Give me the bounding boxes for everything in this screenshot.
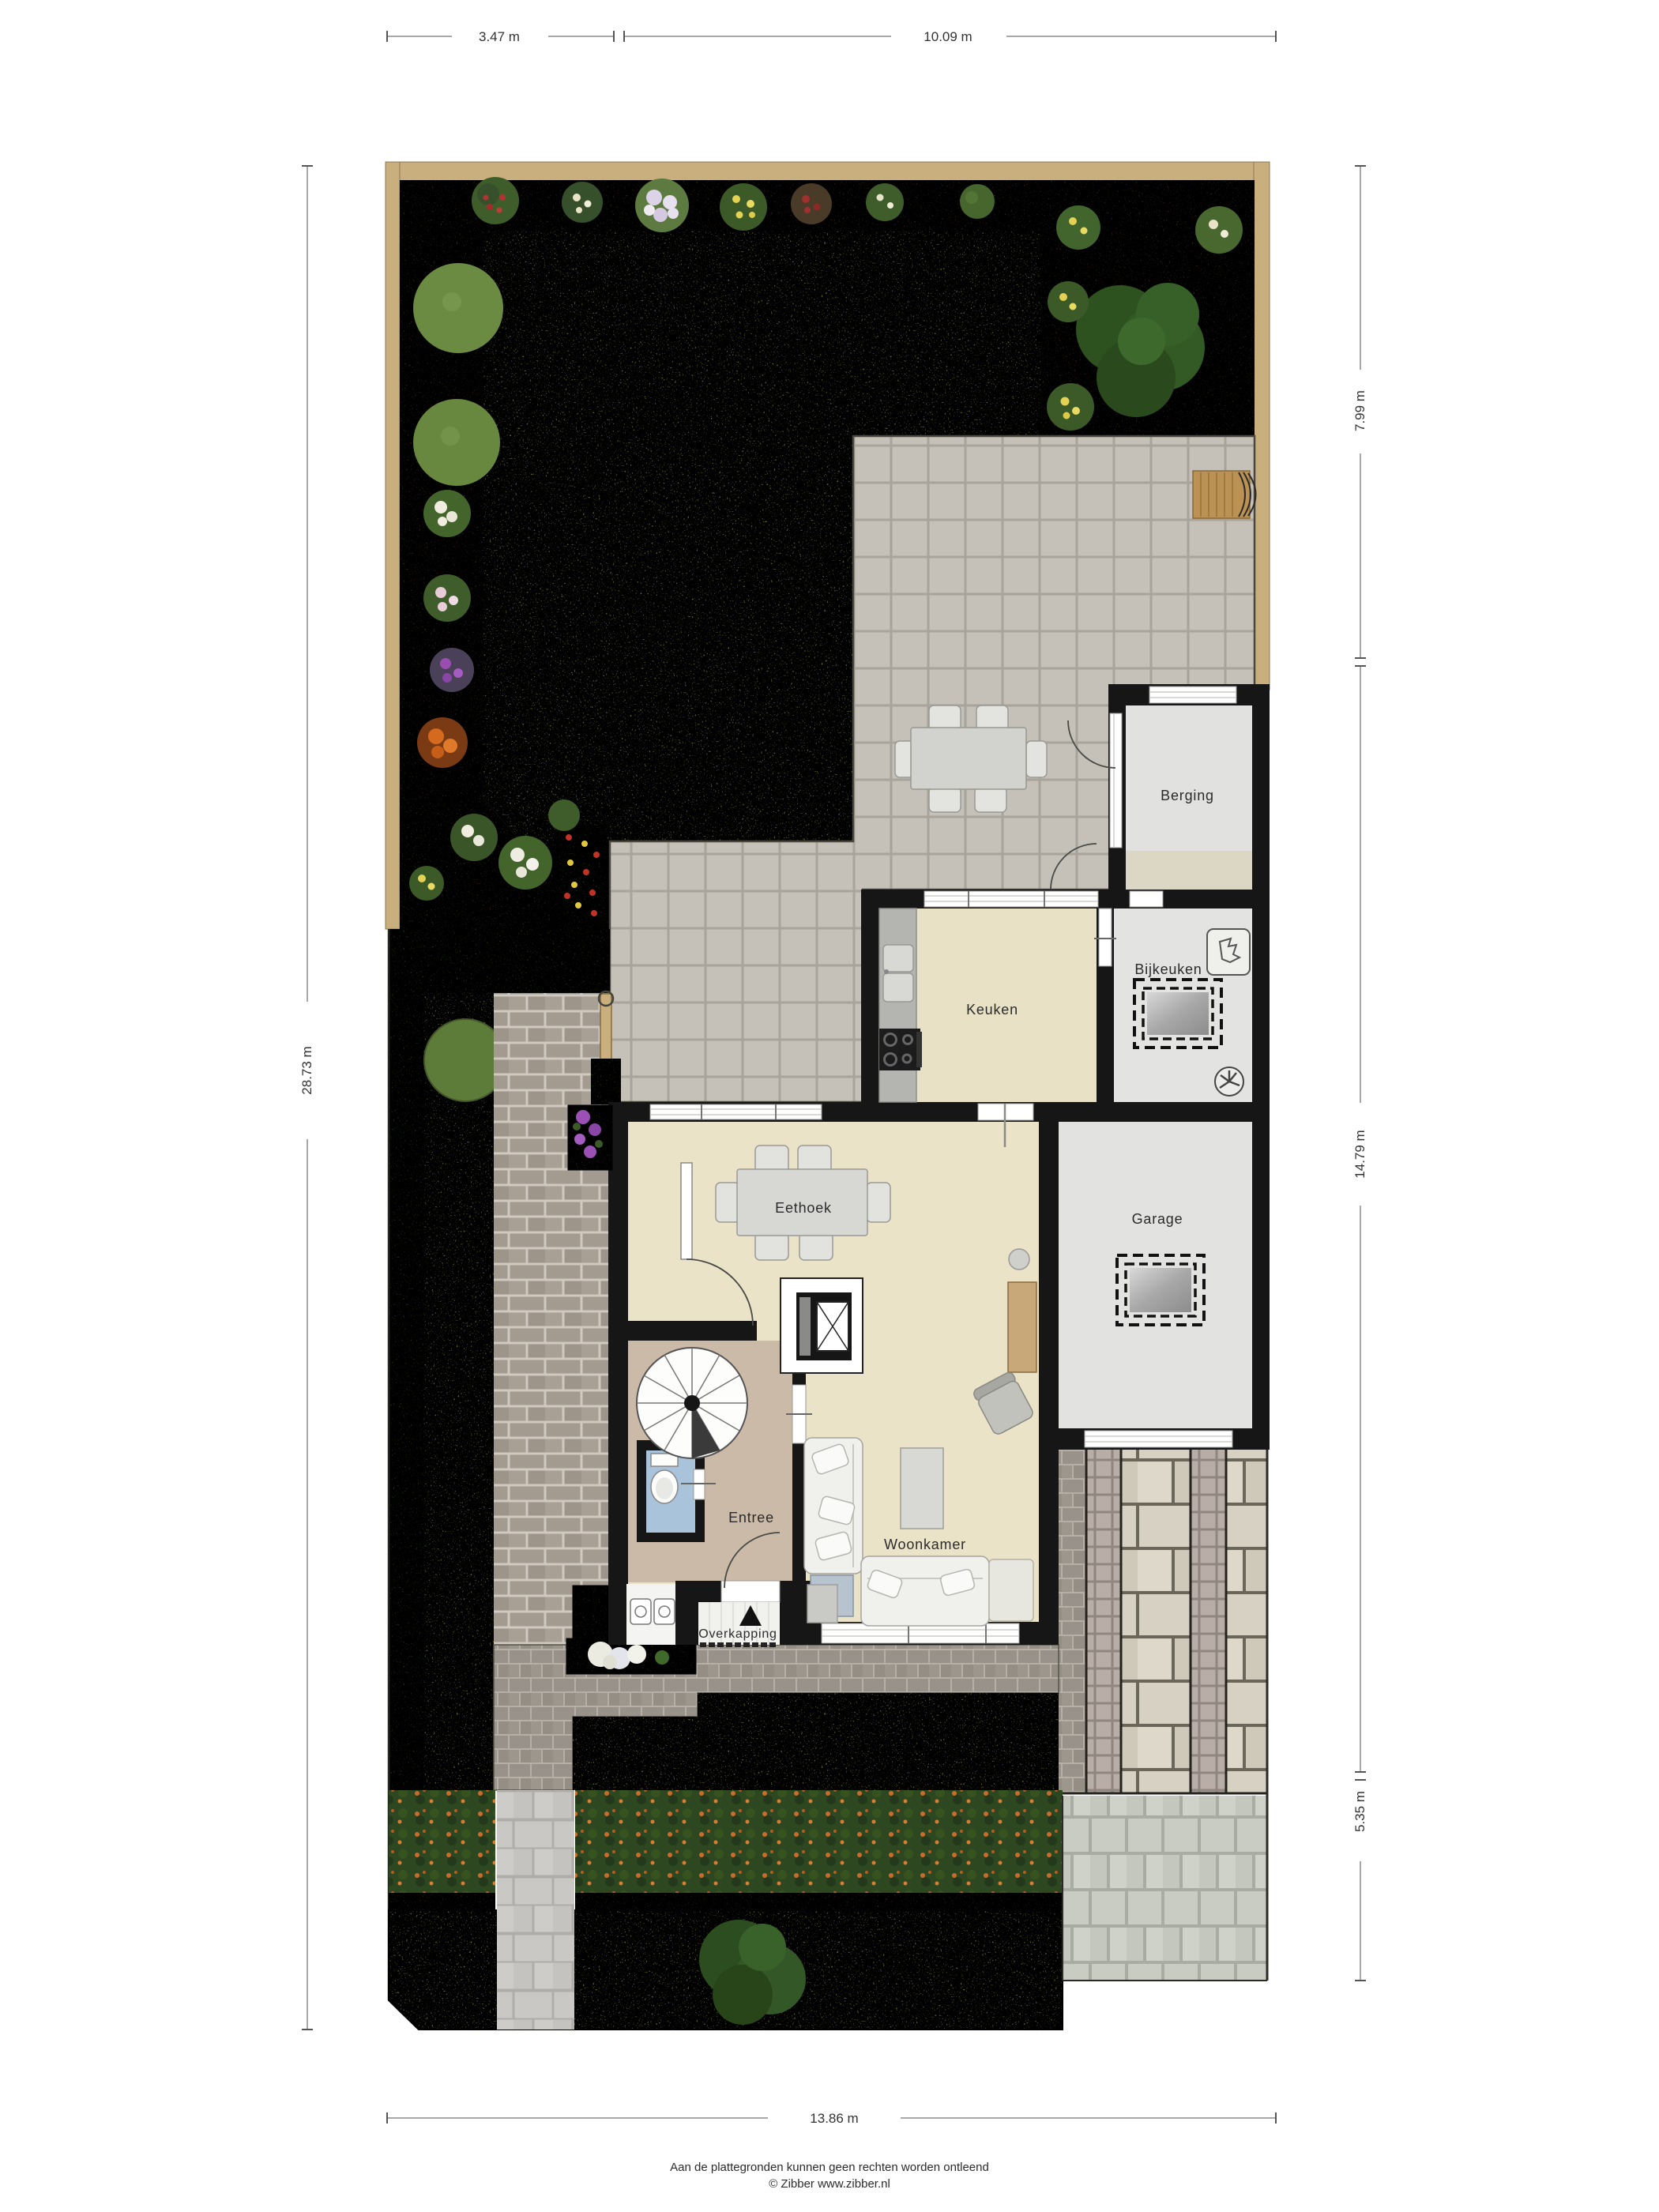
tv-rug [901,1448,943,1529]
flower-bush-yellow-5 [409,866,444,901]
topiary-tree-2 [413,399,500,486]
room-label-entree: Entree [728,1510,774,1525]
fan-icon [1215,1067,1243,1096]
room-label-keuken: Keuken [966,1002,1018,1018]
sidewalk [1063,1796,1267,1981]
dim-right-bottom: 5.35 m [1352,1791,1367,1832]
flower-bush-pink [423,574,471,622]
site-plan-drawing: Berging Bijkeuken Keuken Eethoek Garage … [0,0,1659,2212]
purple-planter [569,1106,611,1169]
dim-top-right: 10.09 m [924,29,972,44]
fence-top [386,162,1270,181]
boiler [1207,929,1250,975]
flower-bush-white-5 [450,814,498,861]
room-label-garage: Garage [1132,1211,1183,1227]
fireplace [781,1278,863,1373]
dim-right-middle: 14.79 m [1352,1130,1367,1178]
flower-bush-yellow-3 [1048,281,1089,322]
berging-floor [1126,705,1254,851]
sofa-main [861,1556,989,1626]
doormat [807,1585,837,1623]
floorplan-page: Berging Bijkeuken Keuken Eethoek Garage … [0,0,1659,2212]
flower-bush-white-6 [498,836,552,890]
flower-bush-white-4 [423,490,471,537]
sideboard [1008,1282,1036,1372]
dim-bottom: 13.86 m [810,2111,858,2126]
spiral-staircase [637,1348,747,1458]
room-label-woonkamer: Woonkamer [884,1537,966,1552]
round-table [1009,1249,1029,1270]
room-label-bijkeuken: Bijkeuken [1134,961,1202,977]
room-label-berging: Berging [1161,788,1214,803]
footer: Aan de plattegronden kunnen geen rechten… [670,2161,989,2191]
hedge-column [389,993,424,1790]
footer-disclaimer: Aan de plattegronden kunnen geen rechten… [670,2161,989,2174]
room-label-overkapping: Overkapping [698,1627,777,1641]
topiary-tree-1 [413,263,503,353]
flower-bush-green-2 [548,799,580,831]
stove [879,1029,922,1070]
room-label-eethoek: Eethoek [775,1200,832,1216]
dim-right-top: 7.99 m [1352,390,1367,431]
tulip-bed [558,826,607,923]
front-walkway [497,1790,574,2030]
flower-bush-yellow-4 [1047,383,1094,431]
flower-bush-purple [430,648,474,692]
flower-bush-white-3 [1195,206,1243,254]
flower-bush-yellow-1 [720,183,767,231]
footer-credit: © Zibber www.zibber.nl [769,2177,890,2191]
flower-bush-orange [417,717,468,768]
driveway [1059,1450,1267,1793]
fence-right [1254,162,1270,690]
flower-bush-red [472,177,519,224]
patio-bench [1193,471,1256,518]
sofa-chaise [804,1438,863,1574]
fence-left [386,162,400,929]
hedge-block [389,929,610,993]
grass-strip [424,993,494,1790]
flower-bush-green [960,184,995,219]
entry-niche [626,1584,675,1645]
dim-left-side: 28.73 m [299,1046,314,1094]
gate-hedge [591,1059,621,1104]
flower-bush-yellow-2 [1056,205,1100,250]
dim-top-left: 3.47 m [479,29,520,44]
flower-bush-white-1 [562,182,603,223]
kitchen-counter [879,908,916,1102]
side-table [989,1559,1033,1621]
flower-bush-lilac [635,179,689,232]
breezeway-floor [1126,851,1254,890]
flower-bush-darkred [791,183,832,224]
flower-bush-white-2 [866,183,904,221]
